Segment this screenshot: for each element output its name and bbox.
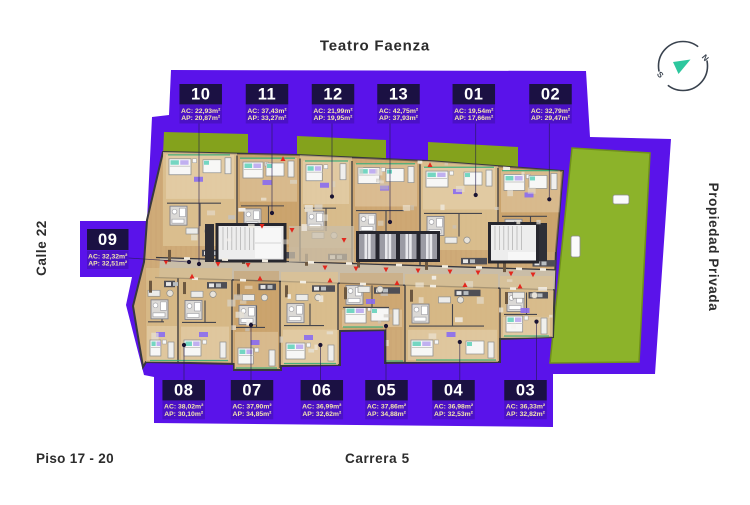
svg-text:AC: 42,75m²: AC: 42,75m² bbox=[379, 108, 419, 115]
svg-text:AP: 19,95m²: AP: 19,95m² bbox=[314, 115, 354, 122]
svg-text:Calle 22: Calle 22 bbox=[34, 220, 49, 276]
svg-text:07: 07 bbox=[242, 382, 261, 400]
svg-text:AP: 20,87m²: AP: 20,87m² bbox=[181, 115, 221, 122]
svg-text:AP: 32,53m²: AP: 32,53m² bbox=[434, 411, 474, 418]
svg-text:AC: 19,54m²: AC: 19,54m² bbox=[454, 108, 494, 115]
svg-text:AC: 36,98m²: AC: 36,98m² bbox=[434, 404, 474, 411]
svg-text:AC: 38,02m²: AC: 38,02m² bbox=[164, 404, 204, 411]
svg-text:04: 04 bbox=[444, 382, 464, 400]
svg-text:AC: 32,79m²: AC: 32,79m² bbox=[531, 108, 571, 115]
svg-text:AC: 22,93m²: AC: 22,93m² bbox=[181, 108, 221, 115]
svg-text:12: 12 bbox=[323, 86, 342, 104]
svg-text:Propiedad Privada: Propiedad Privada bbox=[706, 183, 721, 312]
svg-text:AP: 37,93m²: AP: 37,93m² bbox=[379, 115, 419, 122]
svg-text:AC: 36,33m²: AC: 36,33m² bbox=[506, 404, 546, 411]
svg-text:10: 10 bbox=[191, 86, 210, 104]
svg-text:AP: 32,82m²: AP: 32,82m² bbox=[506, 411, 546, 418]
svg-text:11: 11 bbox=[258, 86, 276, 104]
svg-text:Carrera 5: Carrera 5 bbox=[345, 451, 410, 466]
svg-text:AP: 34,88m²: AP: 34,88m² bbox=[367, 411, 407, 418]
svg-text:AP: 32,51m²: AP: 32,51m² bbox=[88, 261, 128, 268]
svg-text:08: 08 bbox=[174, 382, 193, 400]
svg-text:AP: 34,85m²: AP: 34,85m² bbox=[233, 411, 273, 418]
svg-text:AP: 17,66m²: AP: 17,66m² bbox=[454, 115, 494, 122]
svg-text:AP: 29,47m²: AP: 29,47m² bbox=[531, 115, 571, 122]
svg-text:AC: 32,32m²: AC: 32,32m² bbox=[88, 253, 128, 260]
svg-text:AP: 33,27m²: AP: 33,27m² bbox=[248, 115, 288, 122]
svg-text:AC: 37,86m²: AC: 37,86m² bbox=[367, 404, 407, 411]
svg-text:13: 13 bbox=[389, 86, 408, 104]
svg-text:AP: 32,62m²: AP: 32,62m² bbox=[302, 411, 342, 418]
svg-text:AC: 21,99m²: AC: 21,99m² bbox=[313, 108, 353, 115]
svg-text:09: 09 bbox=[98, 231, 117, 249]
svg-text:Piso 17 - 20: Piso 17 - 20 bbox=[36, 451, 114, 466]
svg-text:AC: 37,90m²: AC: 37,90m² bbox=[232, 404, 272, 411]
svg-text:05: 05 bbox=[377, 382, 396, 400]
svg-text:AC: 36,99m²: AC: 36,99m² bbox=[302, 404, 342, 411]
svg-text:01: 01 bbox=[464, 86, 483, 104]
svg-text:Teatro Faenza: Teatro Faenza bbox=[320, 38, 430, 55]
svg-text:AC: 37,43m²: AC: 37,43m² bbox=[247, 108, 287, 115]
svg-text:06: 06 bbox=[312, 382, 331, 400]
svg-text:03: 03 bbox=[516, 382, 535, 400]
svg-text:AP: 30,10m²: AP: 30,10m² bbox=[164, 411, 204, 418]
svg-text:02: 02 bbox=[541, 86, 560, 104]
